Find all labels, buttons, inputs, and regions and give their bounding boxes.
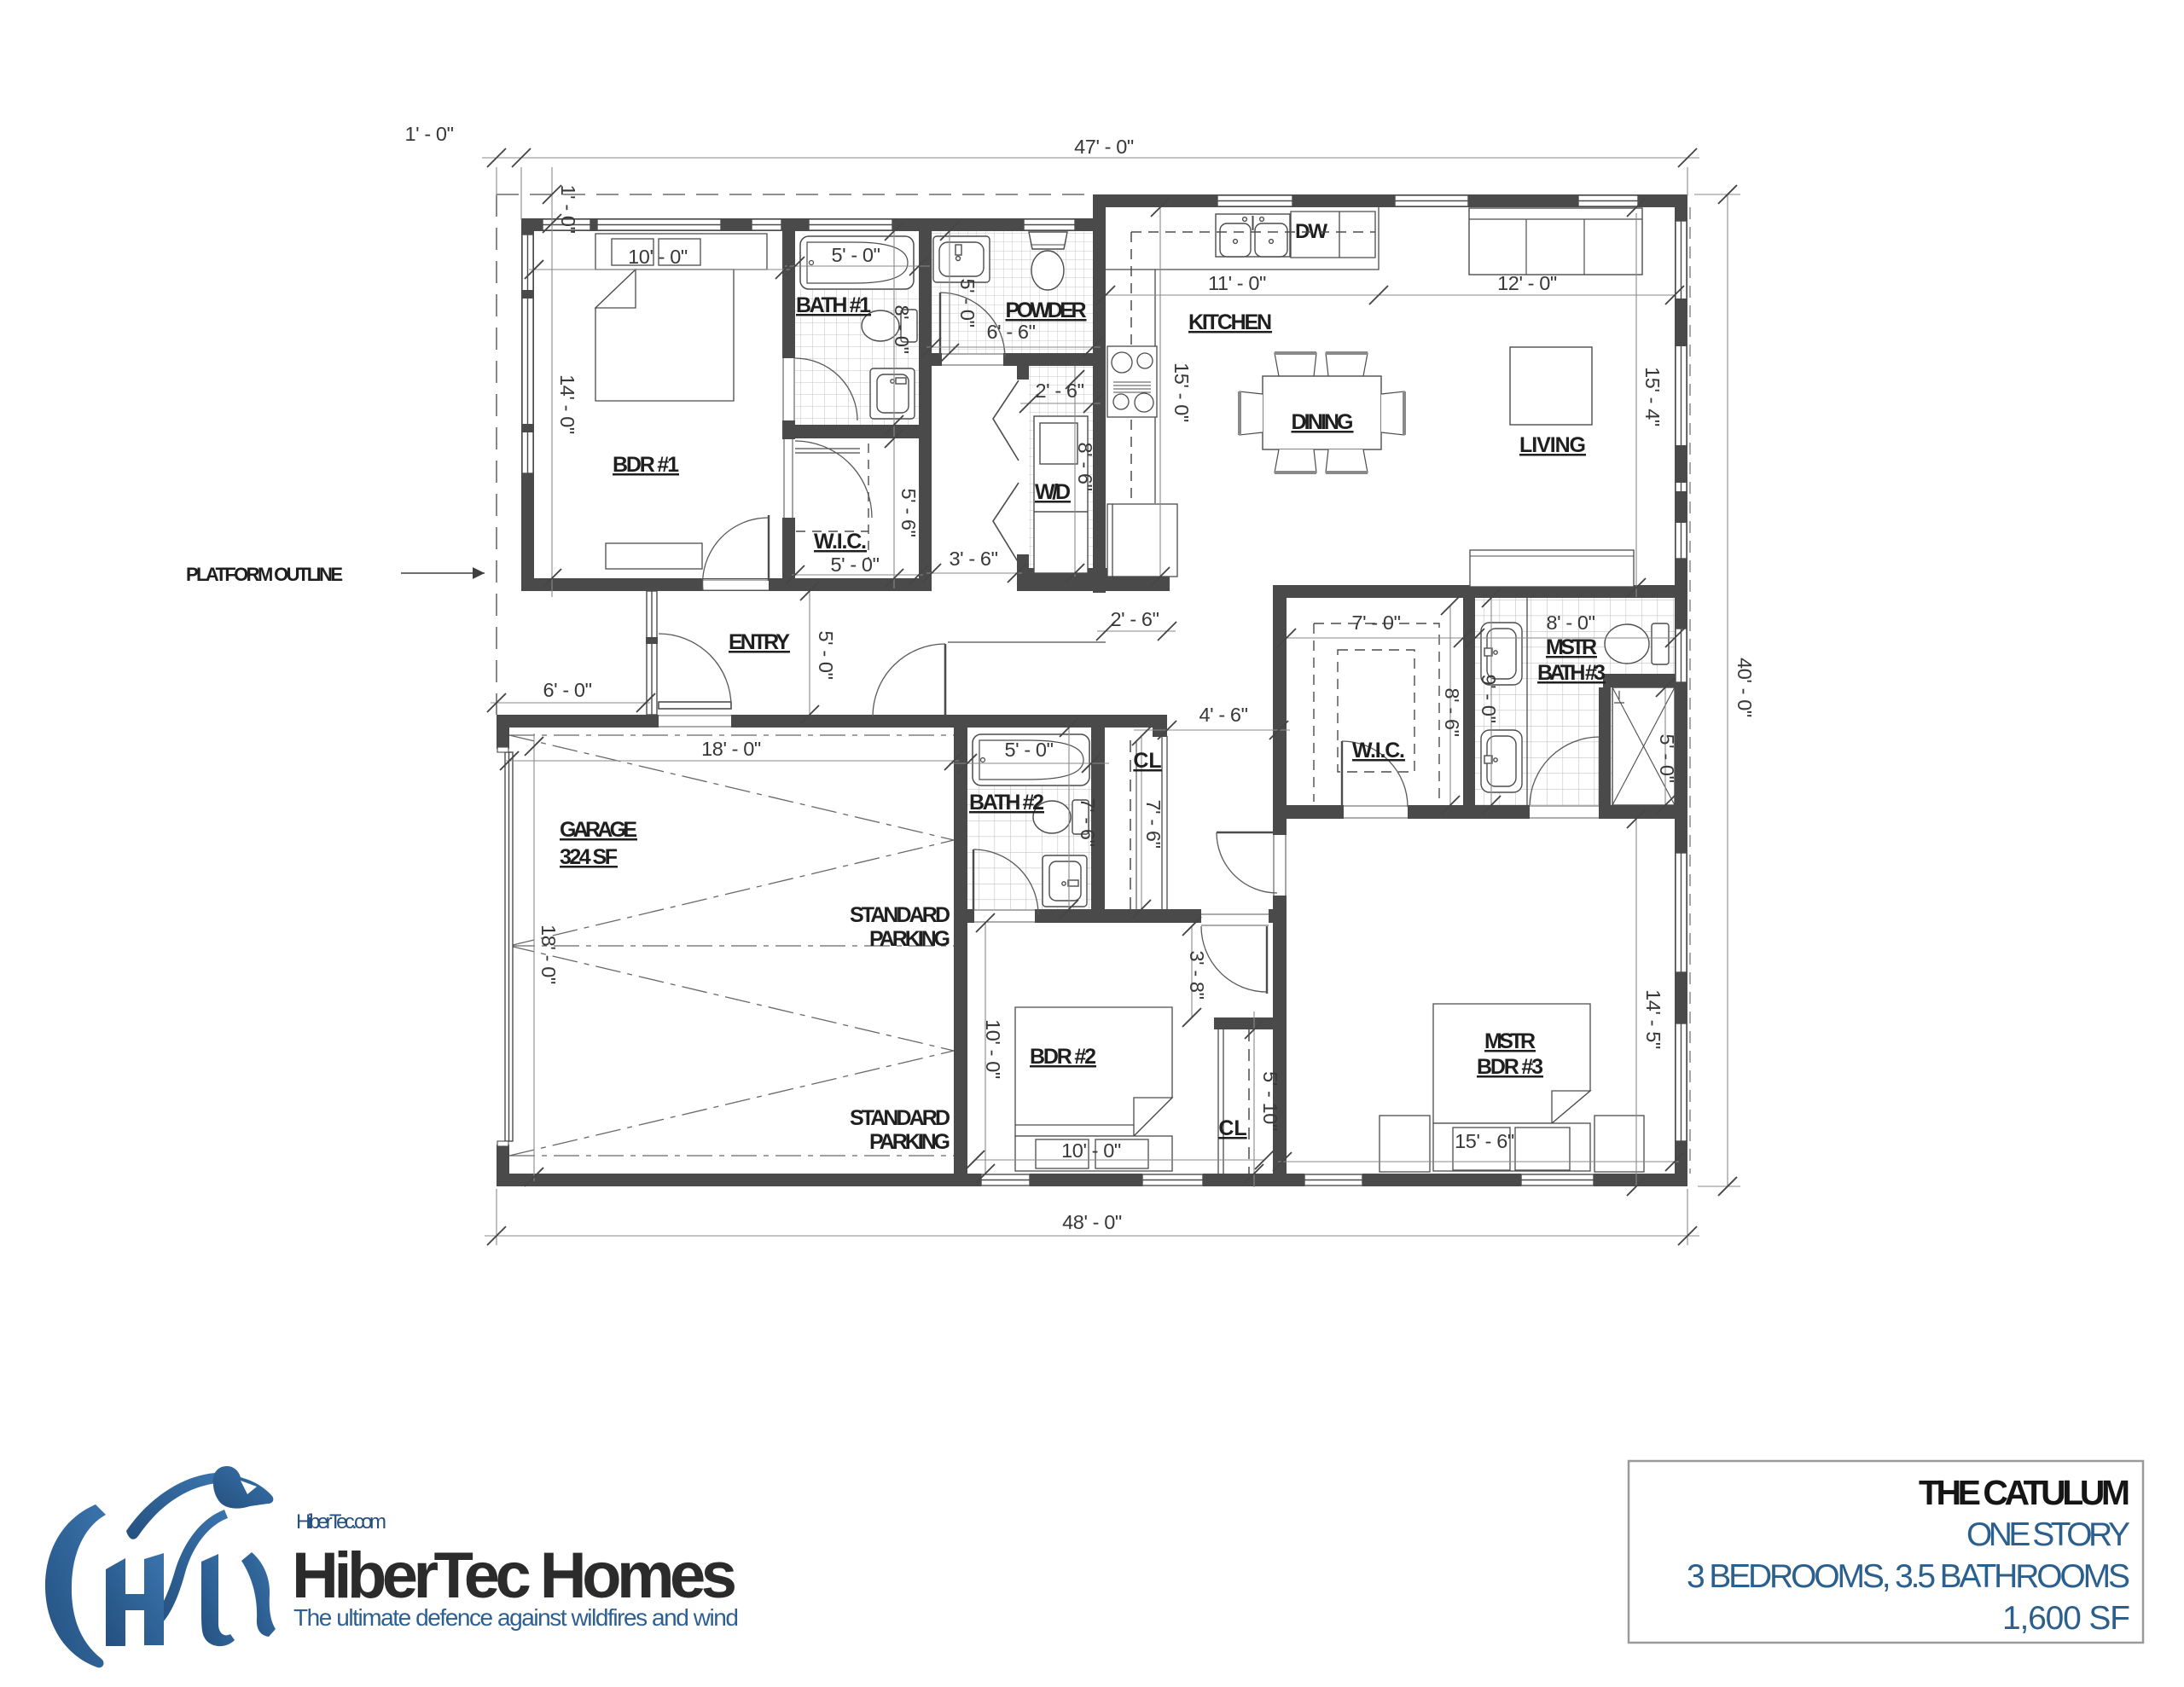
- svg-text:PARKING: PARKING: [869, 927, 950, 951]
- svg-text:The ultimate defence against w: The ultimate defence against wildfires a…: [293, 1604, 739, 1631]
- svg-text:BATH #3: BATH #3: [1537, 661, 1606, 685]
- svg-text:6' - 0": 6' - 0": [543, 679, 591, 701]
- svg-text:3 BEDROOMS, 3.5 BATHROOMS: 3 BEDROOMS, 3.5 BATHROOMS: [1687, 1558, 2130, 1595]
- svg-text:PLATFORM OUTLINE: PLATFORM OUTLINE: [186, 564, 343, 585]
- svg-text:CL: CL: [1133, 749, 1161, 773]
- svg-text:5' - 0": 5' - 0": [831, 244, 880, 266]
- svg-text:10' - 0": 10' - 0": [628, 246, 688, 268]
- svg-text:3' - 6": 3' - 6": [949, 548, 997, 570]
- svg-text:1' - 0": 1' - 0": [404, 123, 453, 145]
- svg-text:8' - 6": 8' - 6": [1441, 687, 1463, 736]
- svg-text:GARAGE: GARAGE: [560, 818, 637, 842]
- svg-text:W/D: W/D: [1035, 480, 1071, 504]
- svg-text:10' - 0": 10' - 0": [1061, 1139, 1121, 1162]
- svg-text:HiberTec Homes: HiberTec Homes: [292, 1539, 737, 1612]
- svg-text:48' - 0": 48' - 0": [1062, 1211, 1122, 1233]
- svg-text:15' - 4": 15' - 4": [1641, 367, 1664, 426]
- svg-text:5' - 6": 5' - 6": [897, 488, 920, 536]
- svg-text:HiberTec.com: HiberTec.com: [296, 1510, 386, 1533]
- svg-text:ONE STORY: ONE STORY: [1966, 1516, 2130, 1553]
- svg-text:5' - 0": 5' - 0": [830, 554, 879, 576]
- svg-text:CL: CL: [1218, 1116, 1246, 1140]
- svg-text:7' - 6": 7' - 6": [1142, 799, 1165, 848]
- svg-text:12' - 0": 12' - 0": [1497, 272, 1557, 294]
- svg-text:W.I.C.: W.I.C.: [814, 530, 867, 554]
- svg-text:MSTR: MSTR: [1546, 635, 1597, 659]
- svg-text:8' - 6": 8' - 6": [1074, 442, 1096, 490]
- svg-text:MSTR: MSTR: [1484, 1029, 1536, 1053]
- svg-text:18' - 0": 18' - 0": [701, 738, 761, 760]
- svg-text:47' - 0": 47' - 0": [1074, 136, 1134, 158]
- svg-text:9' - 0": 9' - 0": [1478, 674, 1500, 722]
- svg-text:8' - 0": 8' - 0": [1546, 612, 1594, 634]
- svg-text:1' - 0": 1' - 0": [557, 184, 579, 233]
- svg-text:15' - 0": 15' - 0": [1170, 362, 1193, 422]
- svg-text:4' - 6": 4' - 6": [1199, 704, 1247, 726]
- svg-text:324 SF: 324 SF: [560, 845, 618, 869]
- svg-text:5' - 10": 5' - 10": [1259, 1071, 1281, 1131]
- svg-text:5' - 0": 5' - 0": [1656, 733, 1678, 782]
- svg-text:7' - 6": 7' - 6": [1077, 797, 1099, 846]
- svg-text:3' - 8": 3' - 8": [1186, 950, 1208, 999]
- svg-text:PARKING: PARKING: [869, 1130, 950, 1154]
- svg-text:BATH #1: BATH #1: [796, 293, 871, 317]
- svg-text:BDR #1: BDR #1: [613, 453, 679, 477]
- svg-text:LIVING: LIVING: [1519, 433, 1586, 457]
- svg-text:7' - 0": 7' - 0": [1351, 612, 1400, 634]
- svg-text:STANDARD: STANDARD: [850, 903, 950, 927]
- svg-text:ENTRY: ENTRY: [729, 630, 790, 654]
- svg-text:W.I.C.: W.I.C.: [1352, 739, 1405, 762]
- svg-text:STANDARD: STANDARD: [850, 1106, 950, 1130]
- svg-text:2' - 6": 2' - 6": [1035, 380, 1083, 402]
- svg-text:BATH #2: BATH #2: [969, 791, 1044, 815]
- svg-text:8' - 0": 8' - 0": [891, 304, 913, 353]
- svg-text:5' - 0": 5' - 0": [815, 630, 837, 679]
- svg-text:BDR #2: BDR #2: [1030, 1045, 1096, 1069]
- svg-text:18' - 0": 18' - 0": [537, 925, 560, 984]
- svg-text:14' - 0": 14' - 0": [556, 374, 578, 434]
- svg-text:5' - 0": 5' - 0": [1004, 739, 1053, 761]
- svg-text:6' - 6": 6' - 6": [986, 321, 1035, 343]
- svg-text:2' - 6": 2' - 6": [1110, 608, 1159, 630]
- svg-text:15' - 6": 15' - 6": [1455, 1130, 1514, 1152]
- svg-text:THE CATULUM: THE CATULUM: [1919, 1473, 2130, 1512]
- svg-text:BDR #3: BDR #3: [1477, 1055, 1543, 1079]
- svg-text:POWDER: POWDER: [1006, 299, 1087, 322]
- svg-text:1,600 SF: 1,600 SF: [2002, 1600, 2130, 1637]
- svg-text:14' - 5": 14' - 5": [1642, 989, 1664, 1049]
- svg-text:11' - 0": 11' - 0": [1208, 272, 1266, 294]
- svg-text:DINING: DINING: [1292, 410, 1354, 434]
- svg-text:5' - 0": 5' - 0": [956, 278, 979, 327]
- svg-text:10' - 0": 10' - 0": [982, 1019, 1004, 1079]
- svg-text:40' - 0": 40' - 0": [1734, 658, 1756, 717]
- svg-text:KITCHEN: KITCHEN: [1188, 310, 1272, 334]
